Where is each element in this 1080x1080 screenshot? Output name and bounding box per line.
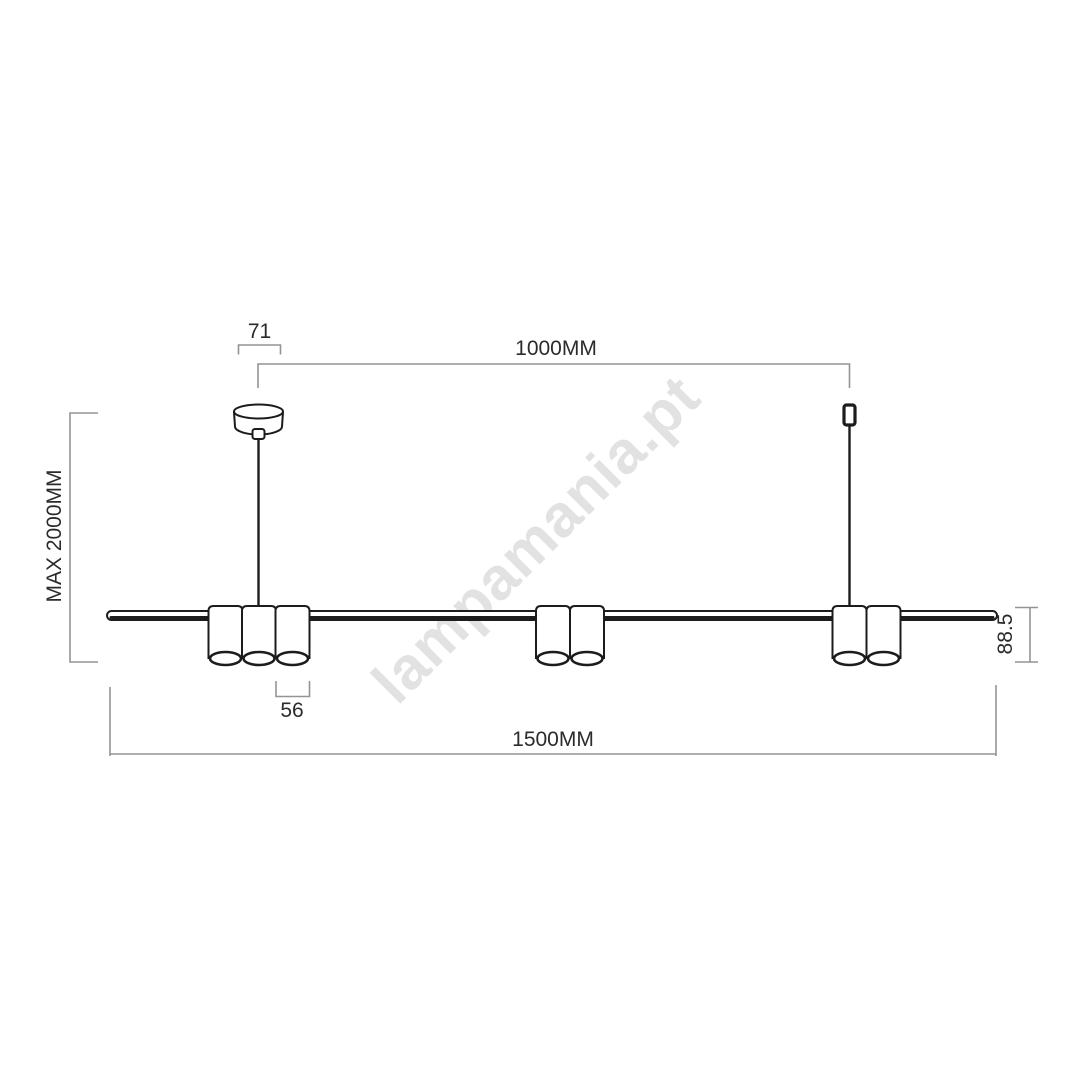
dimension-label-max-height: MAX 2000MM xyxy=(43,469,67,602)
dimension-label-canopy-width: 71 xyxy=(248,320,271,344)
dimension-label-bar-length: 1500MM xyxy=(512,728,594,752)
dimension-lines xyxy=(70,345,1038,756)
shade-cluster-right xyxy=(833,606,901,665)
dimension-label-shade-height: 88.5 xyxy=(994,614,1018,655)
shade-cylinder xyxy=(833,606,867,665)
shade-cylinder xyxy=(570,606,604,665)
dim-line-suspension-span xyxy=(258,364,850,388)
dim-line-canopy-width xyxy=(239,345,281,355)
dimension-label-suspension-span: 1000MM xyxy=(515,337,597,361)
canopy-top xyxy=(234,405,283,419)
lamp-figure xyxy=(107,405,997,666)
shade-cluster-left xyxy=(209,606,310,665)
canopy-cable-grip xyxy=(253,429,265,439)
ceiling-canopy xyxy=(234,405,283,440)
dim-line-shade-diameter xyxy=(276,681,310,697)
lamp-technical-drawing xyxy=(0,0,1080,1080)
dim-line-max-height xyxy=(70,413,98,662)
dimension-label-shade-diameter: 56 xyxy=(280,699,303,723)
shade-cluster-middle xyxy=(536,606,604,665)
shade-cylinder xyxy=(276,606,310,665)
dim-line-shade-height xyxy=(1015,608,1038,663)
shade-cylinder xyxy=(536,606,570,665)
shade-cylinder xyxy=(867,606,901,665)
cable-connector-right xyxy=(844,405,855,425)
diagram-canvas: lampamania.pt xyxy=(0,0,1080,1080)
shade-cylinder xyxy=(209,606,243,665)
shade-cylinder xyxy=(242,606,276,665)
